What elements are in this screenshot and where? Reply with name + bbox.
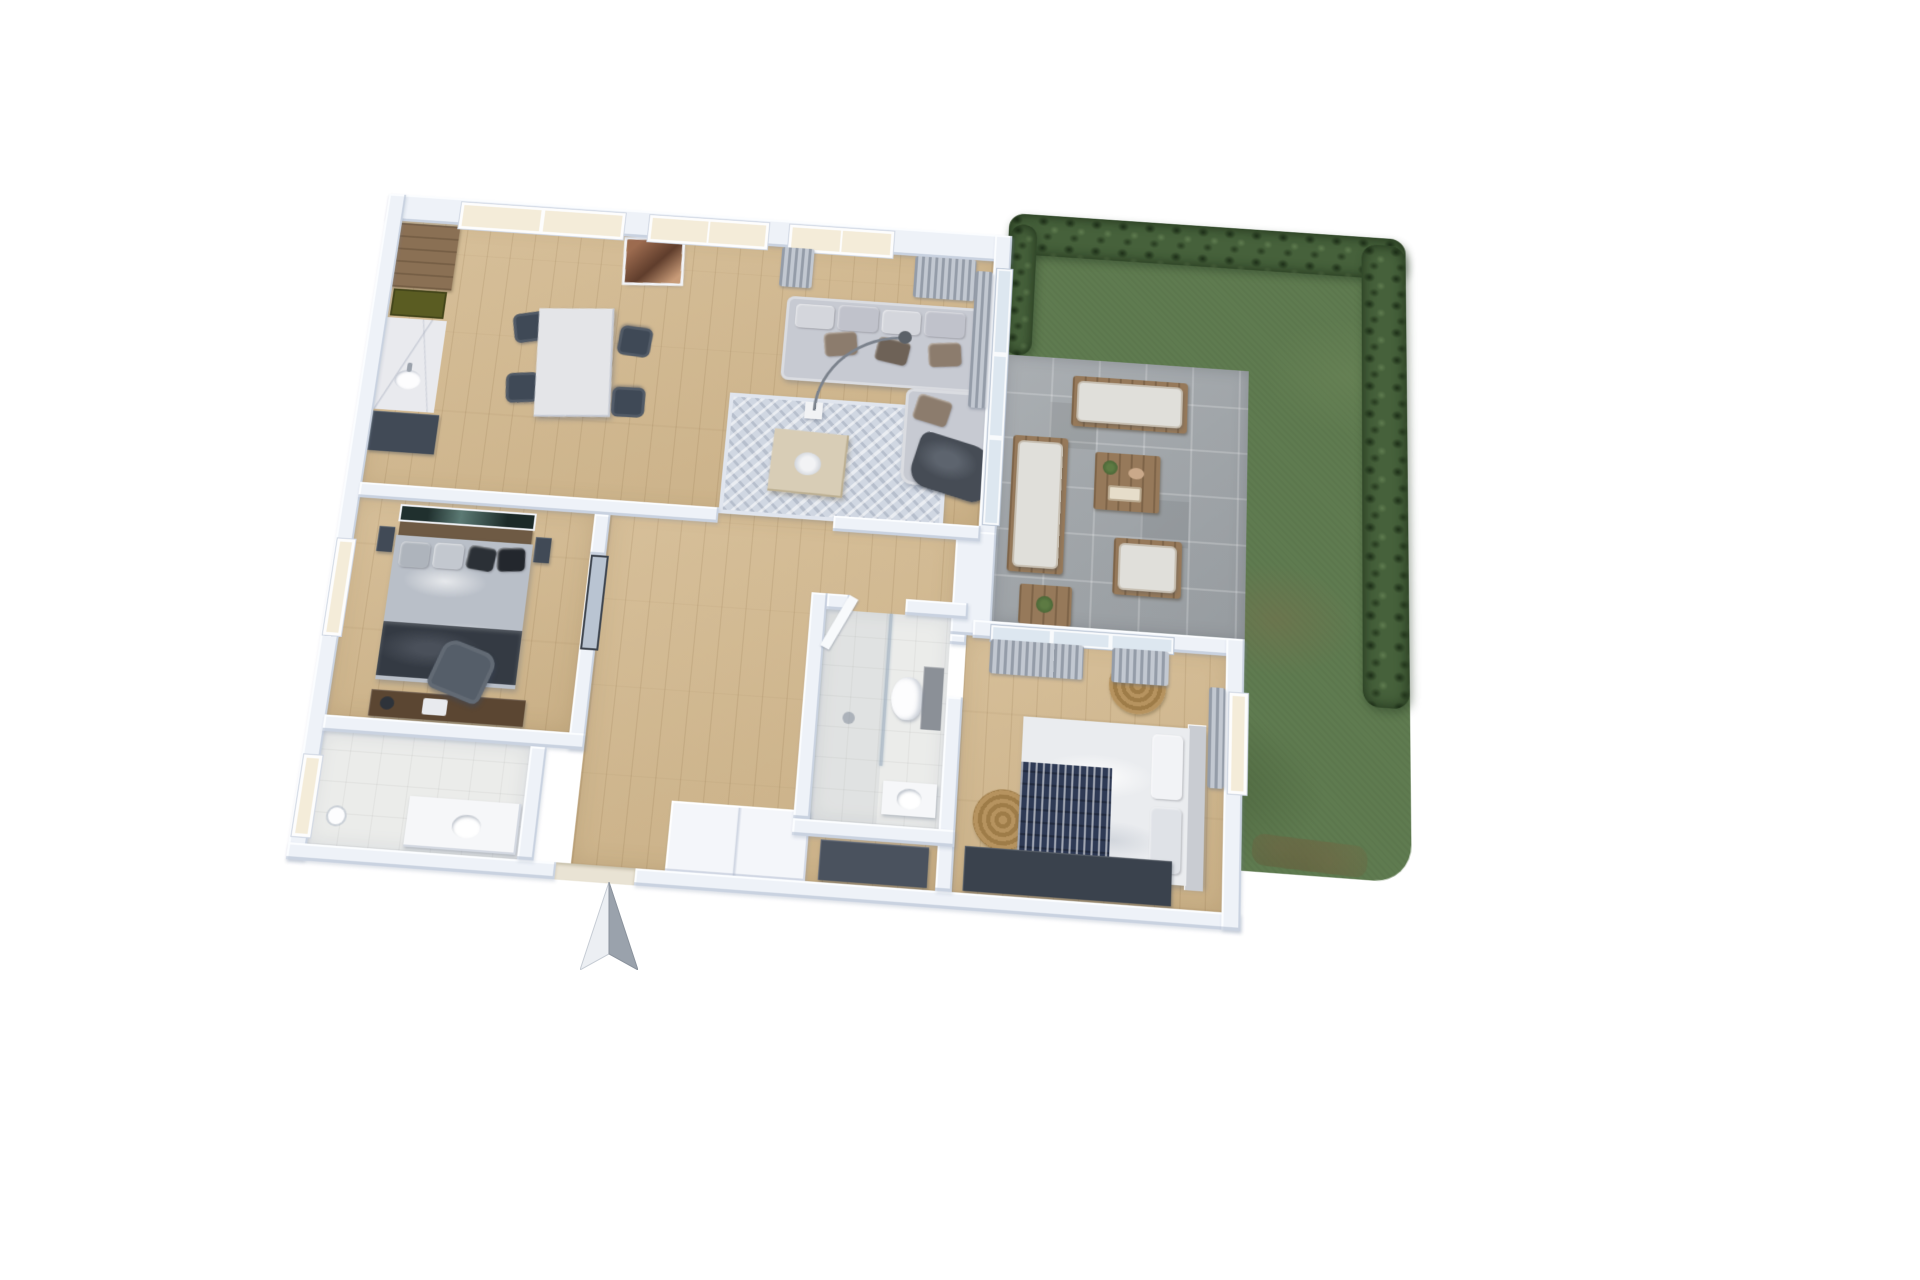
sink [450,814,482,839]
kitchen-sink [393,369,422,390]
floor-plan-scene [241,184,1421,966]
serving-bowl [1128,467,1144,479]
serving-tray [1108,485,1142,503]
kitchen-tall-cabinet [392,223,460,291]
north-arrow-icon [580,882,638,970]
toilet [890,676,923,721]
bed-pillow [465,545,498,573]
round-tray [793,451,822,476]
washbasin [896,788,922,811]
entrance-closet [665,801,811,881]
bed-pillow [398,541,431,568]
dining-chair [616,325,654,358]
vanity [403,796,521,855]
bed-pillow [432,542,465,569]
plant-icon [1103,460,1118,475]
wall-art [625,240,683,284]
outdoor-sofa [1006,435,1068,575]
kitchen-base-unit [367,410,439,454]
sofa-pillow [795,304,835,330]
curtain [779,247,815,288]
bedroom2-left-wall [950,634,967,645]
outdoor-coffee-table [1093,452,1160,514]
outdoor-sofa [1071,376,1188,434]
curtain [1111,648,1169,686]
dining-table [534,308,615,417]
laptop [421,698,448,716]
sofa-pillow [928,342,962,367]
sofa-pillow [924,311,966,339]
outdoor-sofa-cushion [1012,440,1064,570]
curtain [1207,687,1225,789]
bed-pillow [1151,734,1184,801]
hedge-right [1362,244,1411,710]
window [1228,693,1248,795]
sideboard [818,839,930,888]
outdoor-armchair [1112,537,1182,599]
bed-pillow [497,548,526,572]
nightstand [533,537,552,563]
washbasin-counter [881,781,937,819]
sofa-pillow [911,393,953,428]
sofa-pillow [837,305,879,333]
ottoman [767,428,849,498]
toilet-cistern [920,666,944,730]
plant-icon [1036,595,1054,613]
curtain [913,256,977,301]
desk-lamp-icon [379,696,395,710]
outdoor-sofa-cushion [1076,381,1183,429]
curtain [989,639,1084,680]
outdoor-armchair-cushion [1117,543,1177,594]
dining-chair [611,387,646,418]
cooktop [390,288,447,319]
outdoor-side-table [1018,583,1072,626]
